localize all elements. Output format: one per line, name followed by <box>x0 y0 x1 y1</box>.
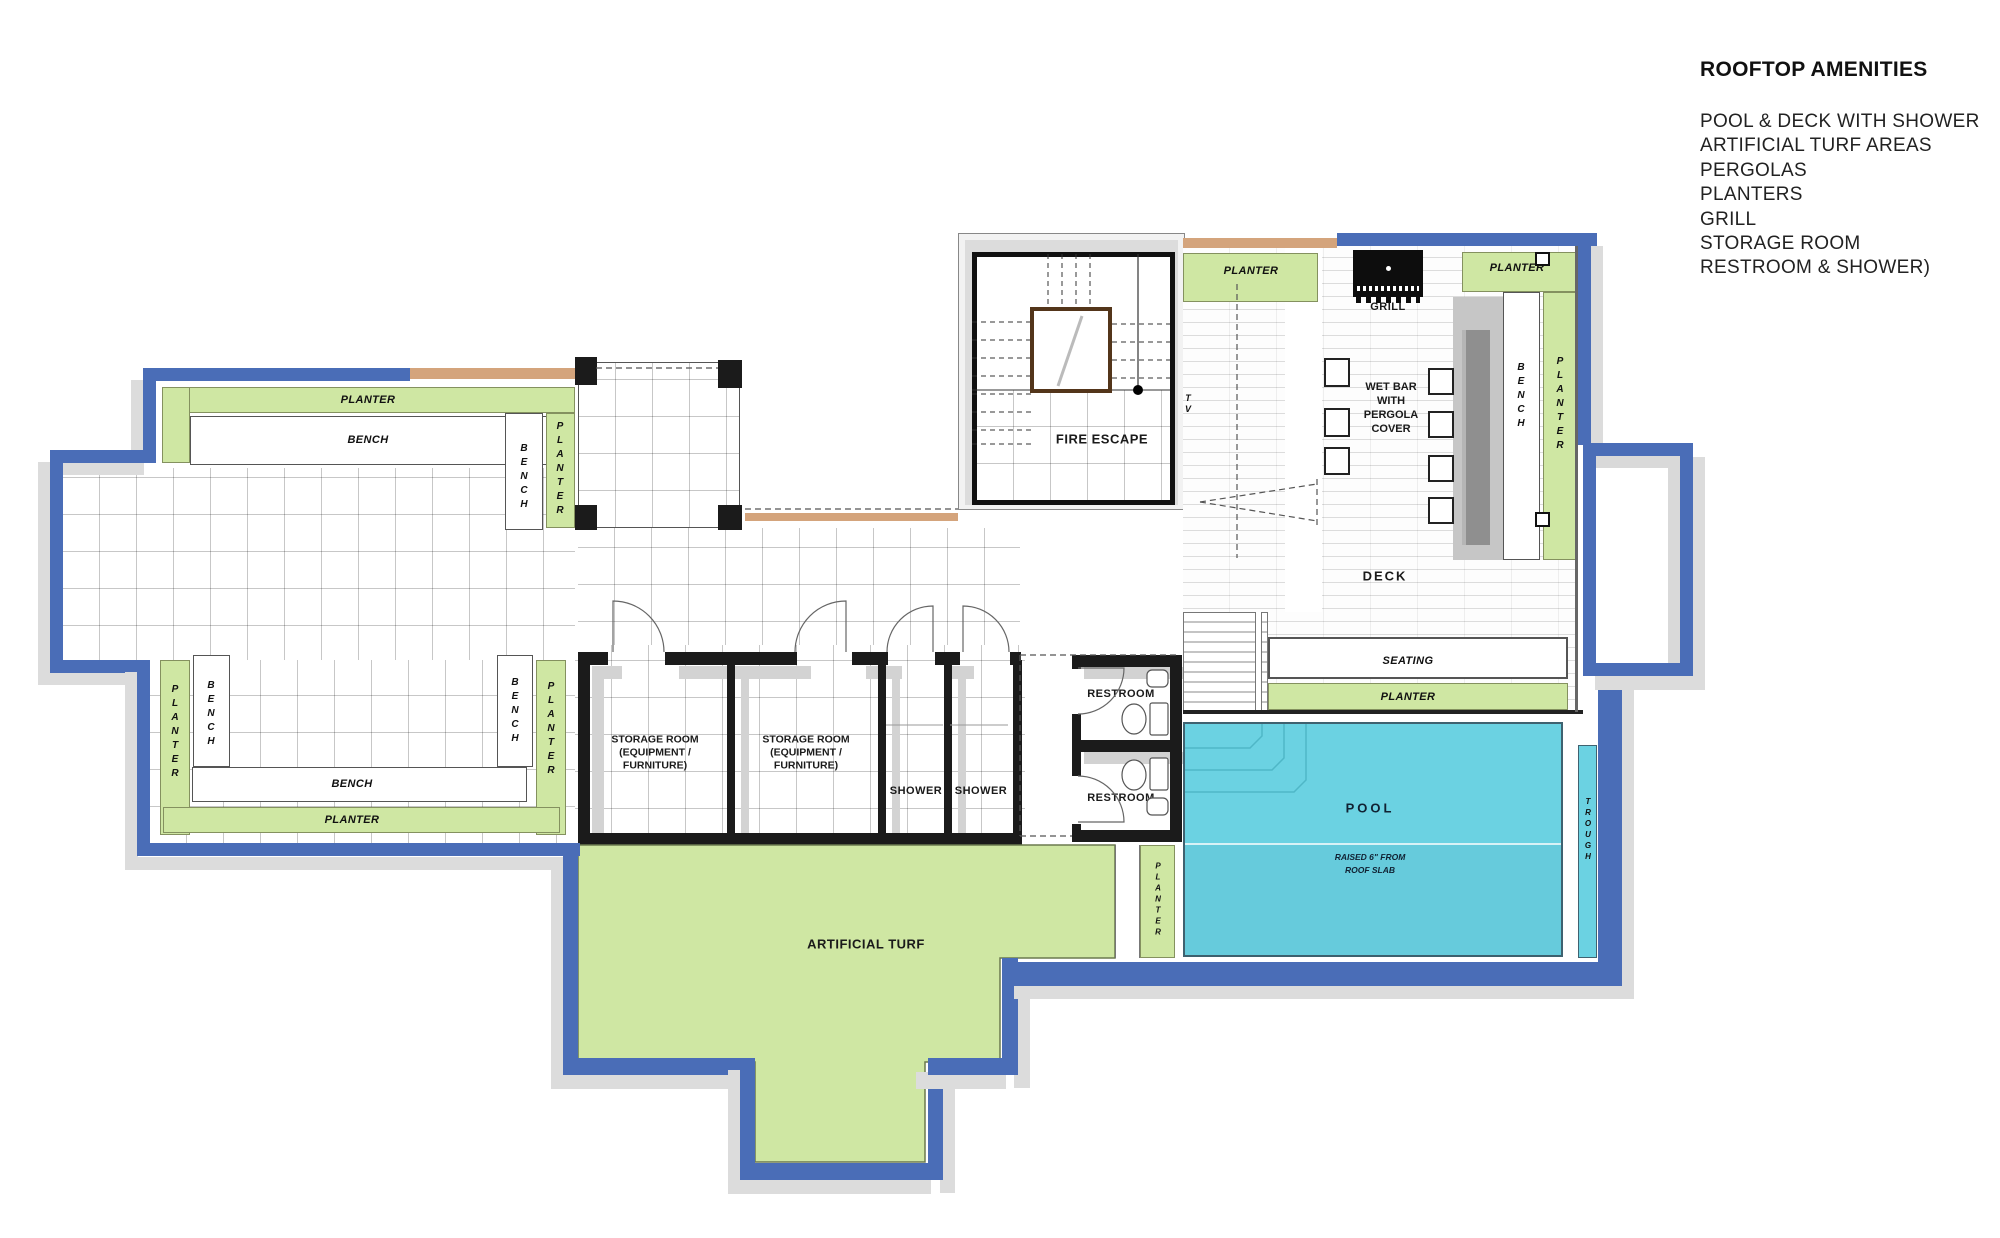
parapet-jut-bottom <box>50 660 150 673</box>
sink-2 <box>1147 798 1168 815</box>
tv-sightline-lower <box>1200 502 1317 521</box>
storage-1-door <box>613 601 664 652</box>
parapet-right-upper <box>1578 233 1591 445</box>
legend-item-restroom: RESTROOM & SHOWER) <box>1700 256 1990 280</box>
parapet-tongue-bottom <box>740 1163 943 1180</box>
parapet-top-right-wood <box>1183 238 1337 248</box>
parapet-left-upper <box>143 368 156 458</box>
sink-1 <box>1147 670 1168 687</box>
door-arcs <box>613 601 1124 822</box>
legend-item-planters: PLANTERS <box>1700 183 1990 207</box>
restroom-fixtures <box>1122 670 1168 815</box>
parapet-top-left <box>143 368 410 381</box>
legend-item-storage: STORAGE ROOM <box>1700 232 1990 256</box>
parapet-pool-bottom <box>1002 962 1622 986</box>
pool-steps <box>1185 724 1306 792</box>
restroom-1-door <box>1078 668 1124 714</box>
parapet-terrace-bottom <box>137 843 580 856</box>
parapet-top-left-wood <box>410 368 575 379</box>
parapet-tongue-right <box>928 1062 943 1180</box>
parapet-left-lower <box>137 660 150 856</box>
parapet-turf-left <box>563 845 578 1070</box>
stair-rail-post <box>1133 385 1143 395</box>
dashed-lines <box>596 284 1317 836</box>
legend-item-grill: GRILL <box>1700 208 1990 232</box>
legend-item-turf: ARTIFICIAL TURF AREAS <box>1700 134 1990 158</box>
parapet-tongue-left <box>740 1058 755 1180</box>
restroom-2-door <box>1078 776 1124 822</box>
legend-title: ROOFTOP AMENITIES <box>1700 58 1990 82</box>
parapet-top-right <box>1337 233 1597 246</box>
parapet-pool-right <box>1598 672 1622 986</box>
storage-2-door <box>795 601 846 652</box>
shower-1-door <box>887 606 933 652</box>
toilet-1-tank <box>1150 703 1168 735</box>
tv-sightline-upper <box>1200 484 1317 502</box>
toilet-2 <box>1122 760 1146 790</box>
parapet-turf-bottom-1 <box>563 1058 755 1075</box>
legend-item-pool-deck: POOL & DECK WITH SHOWER <box>1700 110 1990 134</box>
parapet-jut-top <box>50 450 156 463</box>
balcony-bumpout <box>1583 443 1693 676</box>
legend: ROOFTOP AMENITIES POOL & DECK WITH SHOWE… <box>1700 58 1990 281</box>
balcony-inner-shadow <box>1596 456 1680 663</box>
parapet-left <box>50 450 63 673</box>
rooftop-floor-plan: PLANTER BENCH BENCH PLANTER PLANTER BENC… <box>0 0 2000 1238</box>
toilet-1 <box>1122 704 1146 734</box>
legend-item-pergolas: PERGOLAS <box>1700 159 1990 183</box>
shower-2-door <box>963 606 1009 652</box>
toilet-2-tank <box>1150 758 1168 790</box>
